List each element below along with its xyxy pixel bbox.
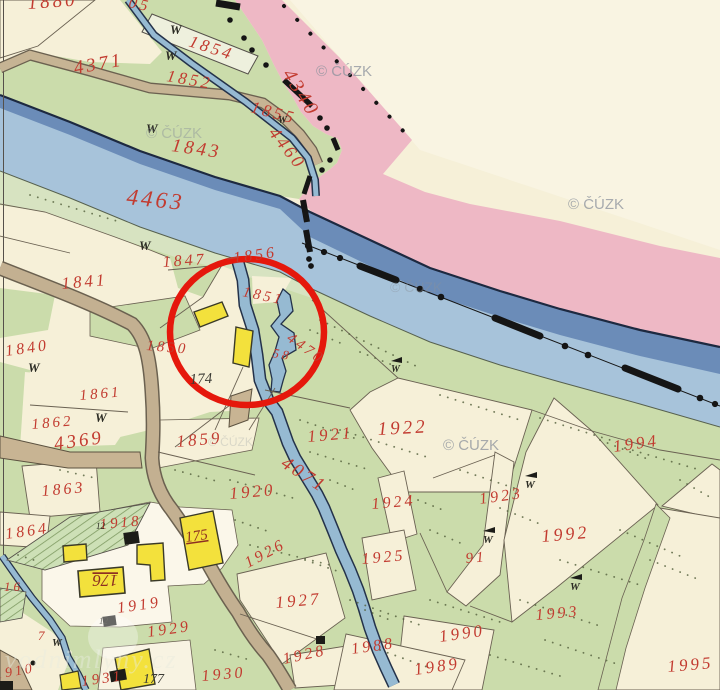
svg-text:W: W [278,115,288,126]
svg-text:177: 177 [143,672,165,687]
svg-text:16: 16 [4,579,23,594]
svg-text:91: 91 [465,549,487,567]
svg-text:175: 175 [184,527,209,546]
svg-text:1927: 1927 [275,589,322,612]
svg-text:W: W [28,360,41,375]
svg-text:1921: 1921 [307,423,354,446]
svg-text:vodnimlyny.cz: vodnimlyny.cz [5,645,178,674]
svg-text:1922: 1922 [377,416,428,440]
svg-text:W: W [165,48,178,63]
svg-text:© ČÚZK: © ČÚZK [390,279,443,295]
svg-text:1992: 1992 [541,522,591,546]
svg-text:176: 176 [92,571,118,590]
svg-text:© ČÚZK: © ČÚZK [316,63,372,80]
svg-text:7: 7 [38,628,48,643]
svg-text:© ČÚZK: © ČÚZK [443,437,499,454]
svg-text:W: W [95,410,108,425]
svg-text:© ČÚZK: © ČÚZK [146,125,202,142]
svg-text:1841: 1841 [61,270,108,293]
svg-text:W: W [483,534,494,546]
svg-text:W: W [525,479,536,491]
svg-text:W: W [139,238,152,253]
svg-text:W: W [170,22,183,37]
svg-text:1847: 1847 [162,251,207,271]
svg-text:W: W [391,364,401,375]
svg-text:1920: 1920 [229,480,276,503]
svg-text:174: 174 [189,371,213,388]
svg-text:W: W [570,581,581,593]
svg-text:© ČÚZK: © ČÚZK [208,434,253,449]
svg-text:12: 12 [96,521,106,531]
svg-text:1995: 1995 [667,653,714,676]
svg-text:© ČÚZK: © ČÚZK [568,196,624,213]
